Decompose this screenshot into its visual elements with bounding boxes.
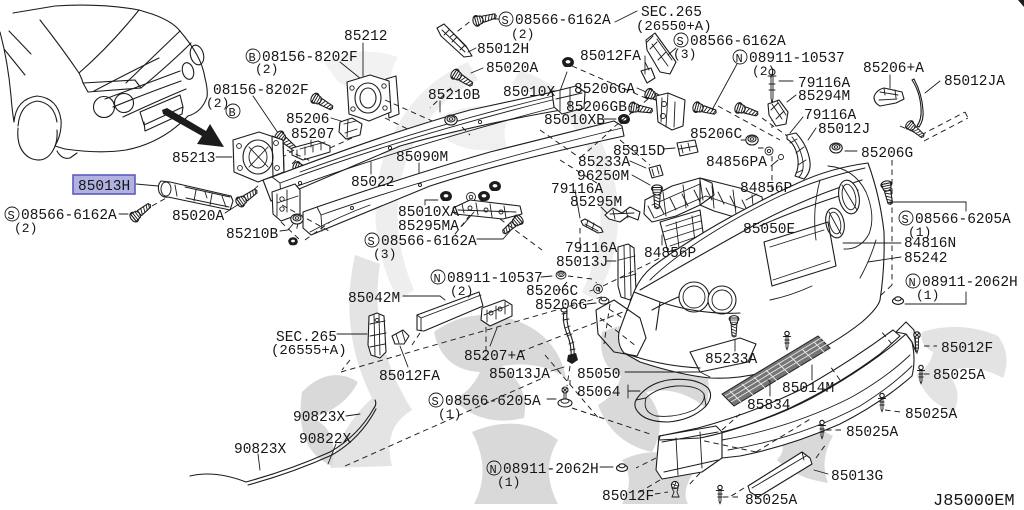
svg-text:85210B: 85210B	[428, 88, 481, 104]
svg-text:85020A: 85020A	[172, 209, 225, 225]
svg-text:85014M: 85014M	[782, 381, 834, 397]
svg-text:85012F: 85012F	[941, 341, 993, 357]
svg-text:N: N	[736, 52, 743, 66]
svg-text:(3): (3)	[373, 247, 396, 262]
svg-text:85206C: 85206C	[690, 127, 743, 143]
svg-text:85233A: 85233A	[705, 352, 758, 368]
svg-text:85012FA: 85012FA	[379, 369, 440, 385]
svg-text:(2): (2)	[752, 64, 775, 79]
svg-text:85042M: 85042M	[348, 291, 400, 307]
svg-text:(2): (2)	[511, 27, 534, 42]
svg-text:85206: 85206	[286, 112, 330, 128]
svg-text:85090M: 85090M	[396, 150, 448, 166]
svg-text:85834: 85834	[747, 398, 791, 414]
svg-text:85025A: 85025A	[846, 425, 899, 441]
svg-text:90823X: 90823X	[234, 442, 287, 458]
svg-text:N: N	[909, 276, 916, 290]
svg-text:85012JA: 85012JA	[944, 74, 1005, 90]
svg-text:(26550+A): (26550+A)	[636, 19, 712, 35]
svg-text:N: N	[434, 272, 441, 286]
svg-text:85013G: 85013G	[831, 469, 883, 485]
svg-text:85206G: 85206G	[535, 298, 587, 314]
svg-text:08566-6162A: 08566-6162A	[690, 34, 786, 50]
svg-text:85206+A: 85206+A	[863, 61, 924, 77]
svg-text:85013J: 85013J	[556, 255, 608, 271]
svg-text:84856P: 84856P	[740, 181, 792, 197]
svg-text:85295MA: 85295MA	[398, 219, 459, 235]
svg-text:85210B: 85210B	[226, 227, 279, 243]
svg-text:(2): (2)	[14, 221, 37, 236]
svg-text:85025A: 85025A	[745, 493, 798, 509]
svg-text:90823X: 90823X	[293, 410, 346, 426]
svg-text:85242: 85242	[904, 251, 948, 267]
svg-text:(1): (1)	[916, 288, 939, 303]
svg-text:85207+A: 85207+A	[464, 349, 525, 365]
svg-text:(1): (1)	[438, 407, 461, 422]
svg-text:85294M: 85294M	[798, 89, 850, 105]
svg-text:(2): (2)	[206, 96, 229, 111]
svg-text:85025A: 85025A	[933, 368, 986, 384]
svg-text:85012FA: 85012FA	[580, 49, 641, 65]
svg-text:(1): (1)	[908, 225, 931, 240]
svg-text:(3): (3)	[673, 47, 696, 62]
svg-text:85013JA: 85013JA	[489, 367, 550, 383]
svg-text:85207: 85207	[291, 127, 335, 143]
svg-text:85050: 85050	[577, 367, 621, 383]
svg-text:85025A: 85025A	[905, 407, 958, 423]
svg-text:J85000EM: J85000EM	[933, 492, 1015, 510]
svg-text:(2): (2)	[255, 62, 278, 77]
svg-text:(2): (2)	[450, 284, 473, 299]
svg-text:85012J: 85012J	[818, 122, 870, 138]
svg-text:(26555+A): (26555+A)	[271, 343, 347, 359]
svg-text:B: B	[229, 106, 236, 120]
svg-text:85020A: 85020A	[486, 61, 539, 77]
svg-text:85212: 85212	[344, 29, 388, 45]
svg-text:85206G: 85206G	[861, 146, 913, 162]
svg-text:85012F: 85012F	[602, 489, 654, 505]
svg-text:85022: 85022	[351, 175, 395, 191]
svg-text:90822X: 90822X	[299, 432, 352, 448]
svg-text:84856P: 84856P	[644, 246, 696, 262]
svg-text:85206GA: 85206GA	[574, 82, 635, 98]
svg-text:85010X: 85010X	[503, 85, 556, 101]
svg-text:84856PA: 84856PA	[706, 155, 767, 171]
svg-text:N: N	[490, 463, 497, 477]
svg-text:85013H: 85013H	[78, 179, 130, 195]
svg-text:85064: 85064	[577, 385, 621, 401]
svg-text:(1): (1)	[497, 475, 520, 490]
svg-text:85012H: 85012H	[477, 42, 529, 58]
svg-text:S: S	[502, 14, 509, 28]
svg-text:85010XB: 85010XB	[544, 113, 605, 129]
svg-text:85295M: 85295M	[570, 195, 622, 211]
svg-text:85213: 85213	[172, 151, 216, 167]
svg-text:85050E: 85050E	[743, 222, 795, 238]
